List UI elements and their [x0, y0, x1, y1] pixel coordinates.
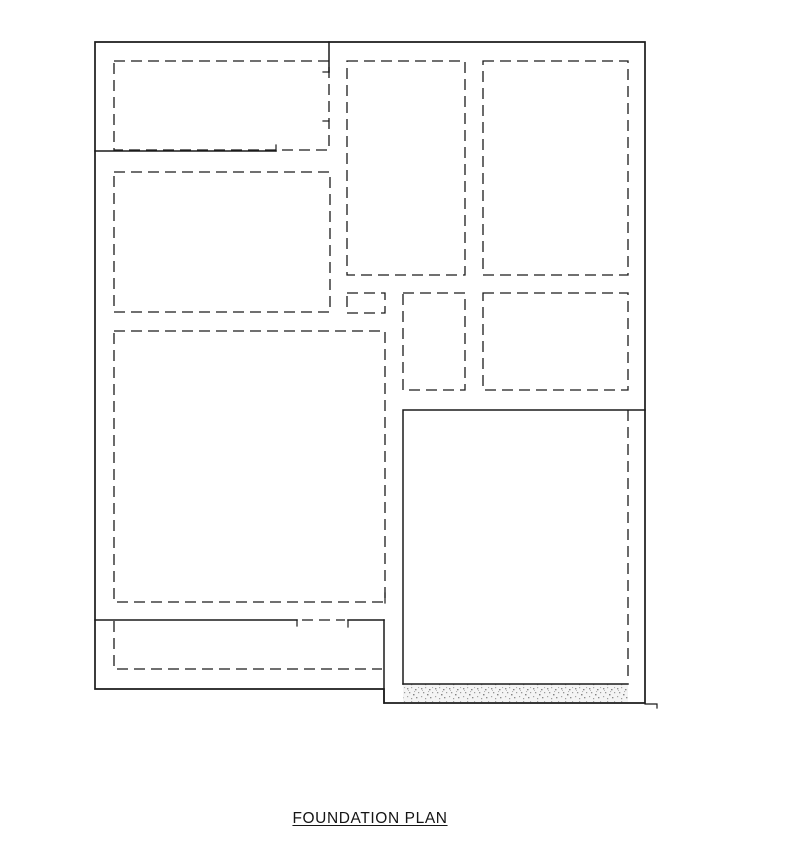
footing-top-left	[114, 61, 329, 150]
slab-wall-top-left	[403, 410, 645, 684]
footing-bottom-strip	[114, 621, 382, 669]
footing-large-left	[114, 331, 385, 602]
footing-mid-center	[403, 293, 465, 390]
footing-mid-left	[114, 172, 330, 312]
footing-mid-right	[483, 293, 628, 390]
footing-tall-right	[483, 61, 628, 275]
outer-foundation-wall	[95, 42, 645, 703]
drawing-title: FOUNDATION PLAN	[0, 810, 740, 828]
stipple-hatch-band	[403, 684, 628, 702]
foundation-plan-page: FOUNDATION PLAN	[0, 0, 802, 858]
corner-leader-tick	[645, 704, 657, 708]
foundation-plan-drawing	[0, 0, 802, 858]
footing-tall-center	[347, 61, 465, 275]
footing-small-pad	[347, 293, 385, 313]
